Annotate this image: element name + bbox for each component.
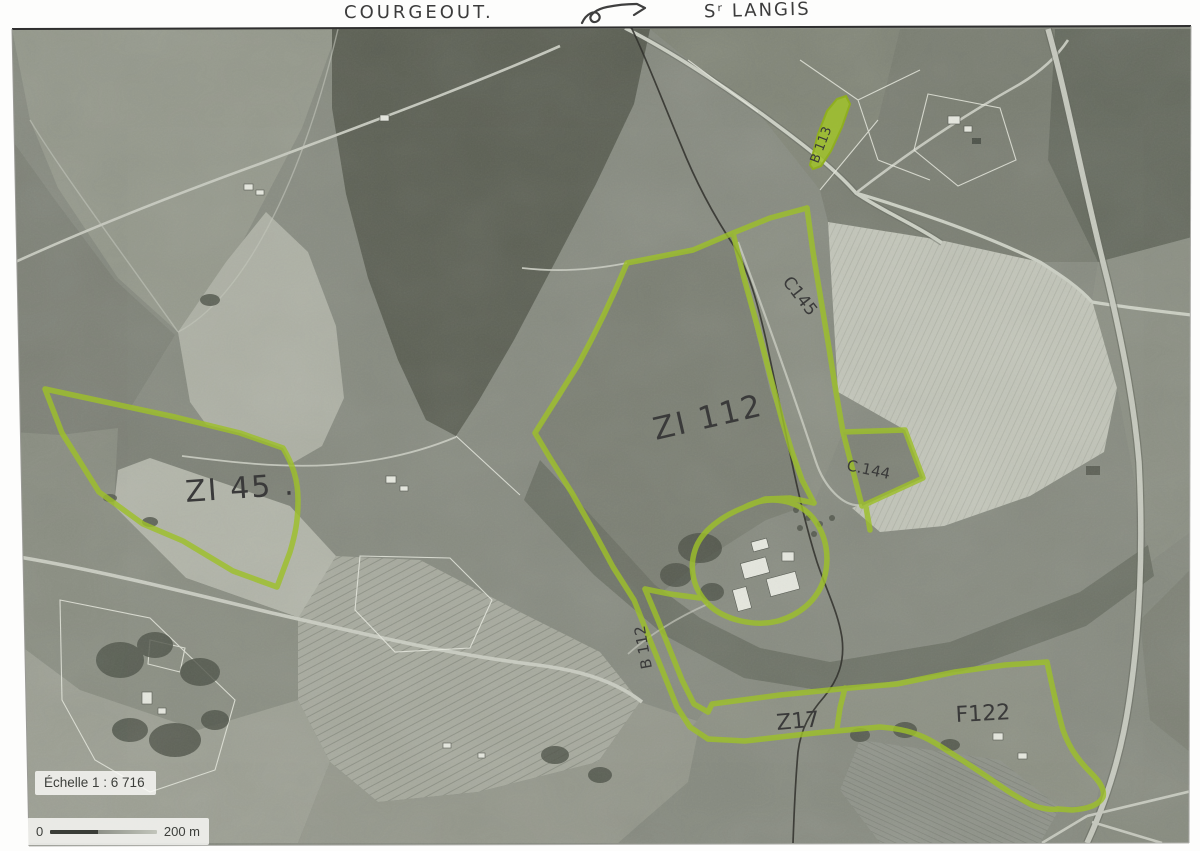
scalebar-line	[50, 830, 157, 834]
parcel-label-z17: Z17	[775, 707, 820, 736]
scale-label: Échelle 1 : 6 716	[44, 775, 145, 790]
scalebar-distance: 200 m	[164, 824, 200, 839]
scalebar-box: 0 200 m	[27, 818, 209, 845]
photo-area: ZI 45 . ZI 112 C145 C.144 B 113 B 112 Z1…	[0, 0, 1200, 851]
aerial-photo-map: ZI 45 . ZI 112 C145 C.144 B 113 B 112 Z1…	[0, 0, 1200, 851]
scanned-map-page: COURGEOUT. Sʳ LANGIS	[0, 0, 1200, 851]
scalebar-zero: 0	[36, 824, 43, 839]
scale-label-box: Échelle 1 : 6 716	[35, 771, 156, 795]
parcel-label-f122: F122	[955, 700, 1011, 728]
